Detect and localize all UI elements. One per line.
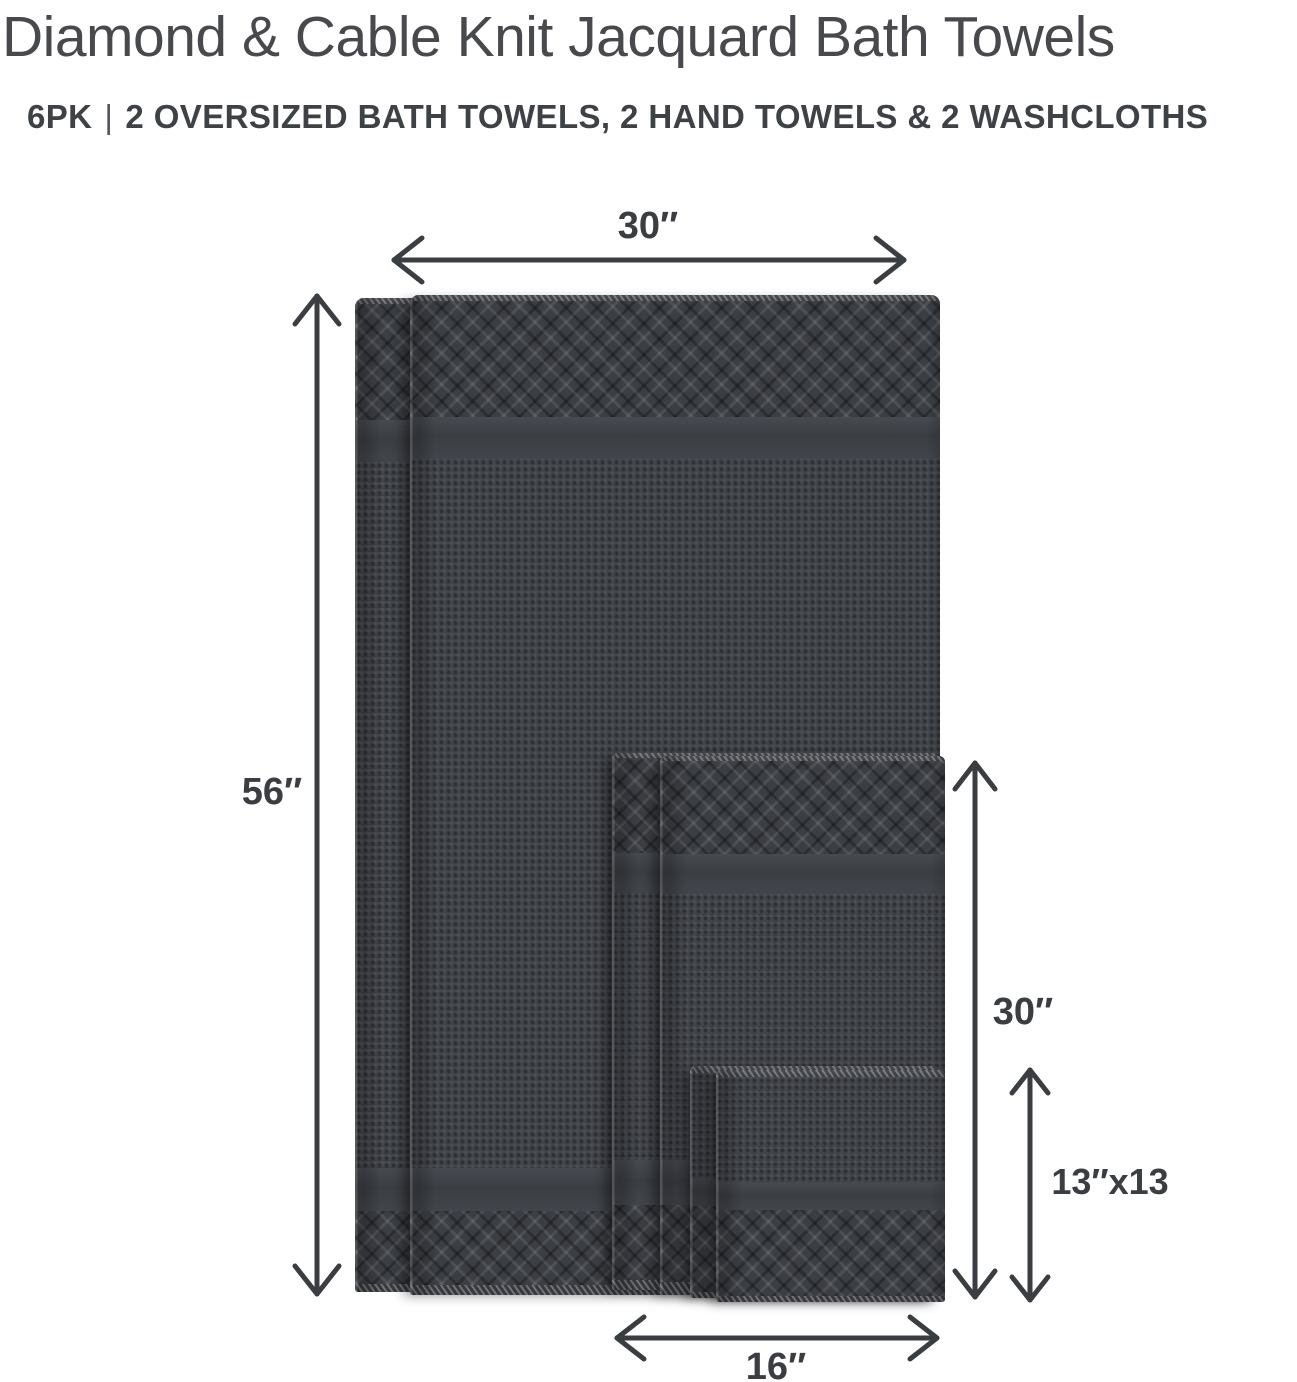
product-infographic: Diamond & Cable Knit Jacquard Bath Towel… (0, 0, 1297, 1382)
dim-label-bath-length: 56″ (212, 773, 332, 811)
dim-label-bath-width: 30″ (588, 207, 708, 245)
dim-label-hand-width: 16″ (716, 1348, 836, 1382)
dim-label-hand-length: 30″ (963, 993, 1083, 1031)
dim-label-washcloth-size: 13″x13 (1020, 1164, 1200, 1200)
